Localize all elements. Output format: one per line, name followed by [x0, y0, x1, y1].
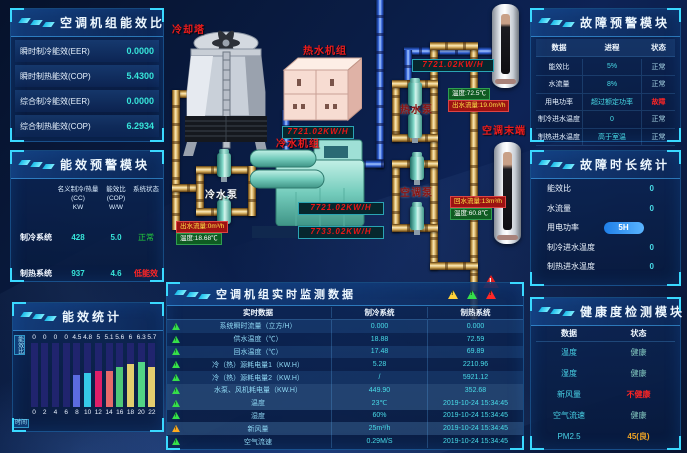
status-badge: 低能效	[133, 258, 159, 288]
heating-value: 0.000	[427, 320, 523, 333]
condenser-pipe-link	[172, 184, 202, 192]
temperature-chip: 温度:60.8℃	[450, 208, 492, 220]
fault-process: 超过额定功率	[582, 94, 642, 112]
metric-label: 冷（热）源耗电量1（KW.H）	[185, 360, 331, 370]
cooling-value: 23℃	[331, 397, 427, 410]
panel-title: 能效预警模块	[11, 151, 163, 179]
alert-triangle-icon	[172, 438, 180, 445]
bar-column: 06	[61, 333, 71, 429]
metric-label: 温度	[185, 398, 331, 408]
ac-pump[interactable]	[410, 156, 424, 180]
monitor-table-row: 水泵、风机耗电量（KW.H） 449.90 352.68	[167, 384, 523, 397]
eer-label: 综合制热能效(COP)	[20, 121, 91, 132]
panel-title-text: 健康度检测模块	[580, 303, 685, 320]
monitor-table-row: 供水温度（℃） 18.88 72.59	[167, 333, 523, 346]
bar	[138, 362, 145, 407]
title-dashes-icon	[540, 160, 573, 169]
alert-triangle-icon	[172, 348, 180, 355]
panel-title-text: 空调机组能效比	[60, 14, 165, 31]
bar-column: 4.58	[72, 333, 82, 429]
hot-water-pump[interactable]	[408, 82, 422, 106]
chilled-water-pump[interactable]	[217, 200, 231, 224]
panel-title: 空调机组实时监测数据	[167, 283, 523, 306]
health-status: 健康	[602, 342, 675, 363]
bar-column: 04	[50, 333, 60, 429]
ac-pump-loop-pipe	[392, 160, 400, 232]
ew-header-cop: 能效比 (COP) W/W	[99, 183, 133, 212]
status-badge: 正常	[133, 222, 159, 252]
duration-metric: 制热进水温度	[547, 261, 595, 272]
alert-triangle-icon	[172, 374, 180, 381]
cooling-value: 18.88	[331, 333, 427, 346]
cop-value: 5.0	[99, 222, 133, 252]
metric-label: 湿度	[185, 411, 331, 421]
panel-realtime-monitor: 空调机组实时监测数据 实时数据 制冷系统 制热系统 系统瞬时流量（立方/H） 0…	[166, 282, 524, 450]
fault-duration-row: 制热进水温度 0	[531, 257, 680, 277]
bar-column: 00	[29, 333, 39, 429]
title-dashes-icon	[176, 290, 209, 299]
panel-energy-stats: 能效统计 能效比 时间 000204064.584.8105125.1145.6…	[12, 302, 164, 432]
heating-value: 2019-10-24 15:34:45	[427, 435, 523, 448]
riser-link-bottom	[430, 262, 478, 270]
metric-label: 空气流速	[185, 437, 331, 447]
heating-value: 2019-10-24 15:34:45	[427, 422, 523, 435]
eer-label: 瞬时制冷能效(EER)	[20, 46, 90, 57]
alert-triangle-icon	[172, 412, 180, 419]
eer-row: 综合制热能效(COP) 6.2934	[15, 115, 159, 137]
fault-process: 0	[582, 111, 642, 129]
cooling-value: 449.90	[331, 384, 427, 397]
heating-value: 5921.12	[427, 371, 523, 384]
eer-value: 5.4300	[126, 71, 154, 81]
hot-pump-loop-pipe	[392, 80, 400, 142]
metric-label: 冷（热）源耗电量2（KW.H）	[185, 373, 331, 383]
panel-health-check: 健康度检测模块 数据 状态 温度 健康 湿度 健康 新风量 不健康	[530, 297, 681, 450]
panel-fault-duration: 故障时长统计 能效比 0 水流量 0 用电功率 5H	[530, 150, 681, 286]
panel-title-text: 空调机组实时监测数据	[216, 286, 356, 302]
duration-metric: 水流量	[547, 203, 571, 214]
chilled-water-pipe	[376, 0, 384, 168]
panel-fault-warning: 故障预警模块 数据 进程 状态 能效比 5% 正常 水流量 8% 正常	[530, 8, 681, 142]
heating-value: 2019-10-24 15:34:45	[427, 397, 523, 410]
bar-column: 4.810	[83, 333, 93, 429]
fault-process: 高于室温	[582, 129, 642, 147]
fault-metric: 能效比	[536, 59, 582, 77]
health-status: 不健康	[602, 384, 675, 405]
eer-row: 瞬时制冷能效(EER) 0.0000	[15, 40, 159, 62]
bar	[106, 371, 113, 407]
y-axis-label: 能效比	[14, 335, 25, 355]
energy-bar-chart: 能效比 时间 000204064.584.8105125.1145.616618…	[21, 333, 157, 429]
heating-value: 69.89	[427, 346, 523, 359]
health-metric: 空气流速	[536, 405, 602, 426]
bar	[148, 367, 155, 407]
health-metric: 湿度	[536, 363, 602, 384]
duration-value: 0	[650, 243, 654, 252]
duration-badge[interactable]: 5H	[604, 222, 644, 234]
metric-label: 水泵、风机耗电量（KW.H）	[185, 385, 331, 395]
fault-duration-row: 用电功率 5H	[531, 218, 680, 238]
eer-value: 0.0000	[126, 96, 154, 106]
duration-value: 0	[650, 184, 654, 193]
heating-value: 72.59	[427, 333, 523, 346]
health-status: 健康	[602, 405, 675, 426]
monitor-table-row: 湿度 60% 2019-10-24 15:34:45	[167, 410, 523, 423]
metric-label: 系统瞬时流量（立方/H）	[185, 321, 331, 331]
fault-metric: 用电功率	[536, 94, 582, 112]
alert-triangle-icon	[172, 387, 180, 394]
ac-pump[interactable]	[410, 206, 424, 230]
health-status: 45(良)	[602, 426, 675, 447]
cooling-value: 0.000	[331, 320, 427, 333]
heating-value: 352.68	[427, 384, 523, 397]
eer-value: 6.2934	[126, 121, 154, 131]
bar	[116, 367, 123, 407]
title-dashes-icon	[540, 307, 573, 316]
hot-water-pump[interactable]	[408, 114, 422, 138]
title-dashes-icon	[20, 160, 53, 169]
cop-value: 4.6	[99, 258, 133, 288]
alert-triangle-icon	[172, 323, 180, 330]
fault-duration-row: 制冷进水温度 0	[531, 238, 680, 258]
fault-duration-row: 能效比 0	[531, 179, 680, 199]
capacity-value: 428	[57, 222, 99, 252]
eer-label: 综合制冷能效(EER)	[20, 96, 90, 107]
fault-process: 5%	[582, 59, 642, 77]
alert-triangle-icon[interactable]	[486, 290, 496, 299]
chilled-pump-loop-pipe	[196, 166, 204, 216]
monitor-table-row: 回水温度（℃） 17.48 69.89	[167, 346, 523, 359]
ew-header-status: 系统状态	[133, 183, 159, 212]
health-metric: PM2.5	[536, 426, 602, 447]
chilled-water-pump[interactable]	[217, 153, 231, 177]
bar	[95, 371, 102, 407]
fault-warning-header: 数据 进程 状态	[536, 39, 675, 57]
monitor-table-row: 系统瞬时流量（立方/H） 0.000 0.000	[167, 320, 523, 333]
duration-value: 0	[650, 262, 654, 271]
panel-title: 故障预警模块	[531, 9, 680, 37]
terminal-riser	[470, 42, 478, 320]
hot-water-unit[interactable]	[280, 52, 362, 124]
ac-terminal-label: 空调末端	[482, 122, 526, 137]
monitor-table-row: 冷（热）源耗电量1（KW.H） 5.28 2210.96	[167, 358, 523, 371]
flow-chip: 出水流量:19.0m³/h	[448, 100, 509, 112]
monitor-table-header: 实时数据 制冷系统 制热系统	[167, 306, 523, 320]
monitor-table-row: 新风量 25m³/h 2019-10-24 15:34:45	[167, 422, 523, 435]
panel-title: 空调机组能效比	[11, 9, 163, 37]
temperature-chip: 温度:72.5℃	[448, 88, 490, 100]
duration-metric: 用电功率	[547, 222, 579, 233]
cooling-value: 17.48	[331, 346, 427, 359]
metric-label: 新风量	[185, 424, 331, 434]
eer-label: 瞬时制热能效(COP)	[20, 71, 91, 82]
panel-title-text: 能效统计	[62, 308, 122, 325]
panel-title-text: 故障时长统计	[580, 156, 670, 173]
health-header: 数据 状态	[536, 326, 675, 342]
chiller-unit[interactable]	[250, 138, 366, 240]
system-name: 制冷系统	[15, 222, 57, 252]
x-axis-label: 时间	[13, 419, 29, 428]
eer-row: 综合制冷能效(EER) 0.0000	[15, 90, 159, 112]
fault-status: 正常	[642, 111, 675, 129]
bar-column: 512	[93, 333, 103, 429]
bar	[84, 373, 91, 407]
heating-value: 2210.96	[427, 358, 523, 371]
alert-triangle-icon[interactable]	[448, 290, 458, 299]
capacity-value: 937	[57, 258, 99, 288]
duration-metric: 能效比	[547, 183, 571, 194]
bar-column: 618	[125, 333, 135, 429]
fault-status: 故障	[642, 94, 675, 112]
cooling-value: 0.29M/S	[331, 435, 427, 448]
system-name: 制热系统	[15, 258, 57, 288]
panel-title: 故障时长统计	[531, 151, 680, 179]
eer-value: 0.0000	[126, 46, 154, 56]
bar-column: 5.616	[115, 333, 125, 429]
hot-water-riser	[430, 42, 438, 270]
monitor-table-row: 空气流速 0.29M/S 2019-10-24 15:34:45	[167, 435, 523, 448]
alert-triangle-icon[interactable]	[467, 290, 477, 299]
alert-triangle-icon	[172, 400, 180, 407]
bar-column: 5.114	[104, 333, 114, 429]
monitor-table-row: 冷（热）源耗电量2（KW.H） / 5921.12	[167, 371, 523, 384]
title-dashes-icon	[22, 312, 55, 321]
panel-title: 能效统计	[13, 303, 163, 331]
panel-title-text: 故障预警模块	[580, 14, 670, 31]
panel-energy-warning: 能效预警模块 名义制冷/热量 (CC) KW 能效比 (COP) W/W 系统状…	[10, 150, 164, 282]
bar-column: 5.722	[147, 333, 157, 429]
duration-value: 0	[650, 204, 654, 213]
condenser-pipe	[172, 90, 180, 230]
fault-metric: 水流量	[536, 76, 582, 94]
bar-column: 6.320	[136, 333, 146, 429]
health-metric: 新风量	[536, 384, 602, 405]
cooling-value: 5.28	[331, 358, 427, 371]
panel-title-text: 能效预警模块	[60, 156, 150, 173]
alert-triangle-icon	[172, 425, 180, 432]
energy-bars: 000204064.584.8105125.1145.6166186.3205.…	[29, 333, 157, 429]
health-status: 健康	[602, 363, 675, 384]
fault-status: 正常	[642, 76, 675, 94]
metric-label: 供水温度（℃）	[185, 334, 331, 344]
eer-row: 瞬时制热能效(COP) 5.4300	[15, 65, 159, 87]
ac-terminal-unit[interactable]	[494, 142, 521, 244]
ew-header-spacer	[15, 183, 57, 212]
health-metric: 温度	[536, 342, 602, 363]
ac-pump-label: 空调泵	[400, 184, 433, 199]
fault-status: 正常	[642, 129, 675, 147]
monitor-table-row: 温度 23℃ 2019-10-24 15:34:45	[167, 397, 523, 410]
temperature-chip: 温度:18.68℃	[176, 233, 222, 245]
metric-label: 回水温度（℃）	[185, 347, 331, 357]
alert-triangle-icon	[172, 361, 180, 368]
panel-eer: 空调机组能效比 瞬时制冷能效(EER) 0.0000 瞬时制热能效(COP) 5…	[10, 8, 164, 142]
cooling-value: /	[331, 371, 427, 384]
panel-title: 健康度检测模块	[531, 298, 680, 326]
fault-metric: 制热进水温度	[536, 129, 582, 147]
hvac-dashboard: 7721.02KW/H 7721.02KW/H 7721.02KW/H 7733…	[0, 0, 687, 453]
heating-value: 2019-10-24 15:34:45	[427, 410, 523, 423]
bar-column: 02	[40, 333, 50, 429]
ac-terminal-unit[interactable]	[492, 4, 519, 88]
fault-status: 正常	[642, 59, 675, 77]
cooling-value: 60%	[331, 410, 427, 423]
cooling-value: 25m³/h	[331, 422, 427, 435]
energy-meter: 7721.02KW/H	[412, 59, 494, 72]
fault-metric: 制冷进水温度	[536, 111, 582, 129]
ew-header-capacity: 名义制冷/热量 (CC) KW	[57, 183, 99, 212]
title-dashes-icon	[20, 18, 53, 27]
alert-triangle-icon	[172, 336, 180, 343]
bar	[127, 364, 134, 407]
title-dashes-icon	[540, 18, 573, 27]
fault-duration-row: 水流量 0	[531, 199, 680, 219]
riser-link-top	[430, 42, 478, 50]
bar	[73, 375, 80, 407]
fault-process: 8%	[582, 76, 642, 94]
duration-metric: 制冷进水温度	[547, 242, 595, 253]
